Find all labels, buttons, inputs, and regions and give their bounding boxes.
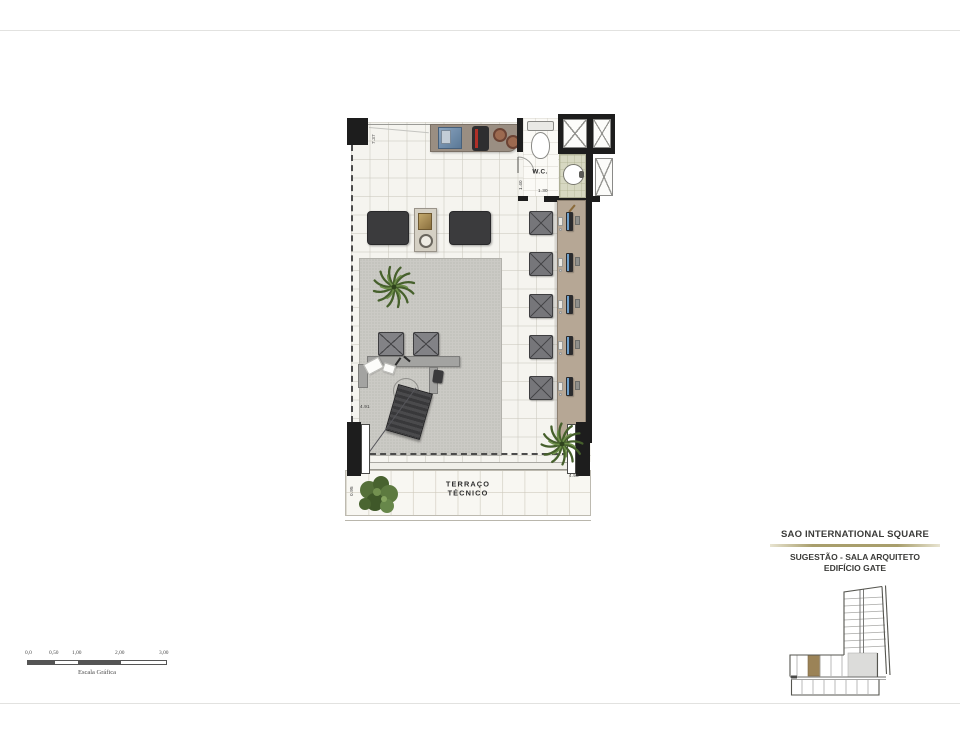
scale-tick-3: 2,00: [115, 649, 125, 655]
task-chair-2: [529, 252, 553, 276]
page-top-rule: [0, 30, 960, 31]
task-chair-1: [529, 211, 553, 235]
page: { "plan": { "labels": { "wc": "W.C.", "t…: [0, 0, 960, 735]
page-bottom-rule: [0, 703, 960, 704]
scale-segment-light-2: [121, 661, 166, 664]
basin-tap: [579, 171, 584, 178]
shaft-duct-2: [593, 119, 611, 148]
floor-plan: W.C. 1.40 1.30: [345, 112, 617, 532]
dim-top-width: 7.37: [371, 134, 376, 144]
palm-plant-2: [533, 415, 591, 473]
scale-tick-0: 0,0: [25, 649, 32, 655]
decor-bowl: [419, 234, 433, 248]
wall-wc-door-jamb: [518, 196, 528, 201]
scale-tick-1: 0,50: [49, 649, 59, 655]
workstation-desk: [557, 200, 586, 443]
wall-basin-east: [586, 154, 593, 202]
scale-bar: 0,0 0,50 1,00 2,00 3,00 Escala Gráfica: [25, 649, 175, 685]
table-lamp: [418, 213, 432, 230]
architect-chair-1: [378, 332, 404, 356]
coffee-machine-accent: [475, 129, 478, 148]
armchair-1: [367, 211, 409, 245]
building-key-diagram: [789, 583, 921, 697]
wc-label: W.C.: [528, 168, 552, 175]
task-chair-3: [529, 294, 553, 318]
palm-plant-1: [365, 258, 423, 316]
scale-caption: Escala Gráfica: [45, 668, 149, 675]
dim-room-depth: 4.91: [360, 404, 370, 409]
dim-wc-depth: 1.40: [518, 180, 523, 190]
scale-bar-rule: [27, 660, 167, 665]
toilet-bowl: [531, 132, 550, 159]
title-separator: [770, 544, 940, 547]
plan-subtitle-1: SUGESTÃO - SALA ARQUITETO: [770, 552, 940, 562]
west-glass-wall: [351, 145, 353, 422]
architect-chair-2: [413, 332, 439, 356]
toilet-tank: [527, 121, 554, 131]
dim-wc-width: 1.30: [538, 188, 548, 193]
task-chair-4: [529, 335, 553, 359]
scale-tick-2: 1,00: [72, 649, 82, 655]
top-wall-line: [367, 124, 431, 125]
dim-terrace-depth: 0.95: [349, 486, 354, 496]
pillar-top-left: [347, 118, 368, 145]
armchair-2: [449, 211, 491, 245]
telephone: [432, 369, 444, 383]
shaft-duct-1: [563, 119, 587, 148]
shaft-duct-3: [595, 158, 613, 196]
pillar-bottom-left: [347, 422, 361, 476]
terrace-label: TERRAÇO TÉCNICO: [433, 480, 503, 498]
sink-basin: [441, 130, 451, 144]
window-frame-left: [361, 424, 370, 474]
scale-segment-dark-1: [28, 661, 55, 664]
project-title: SAO INTERNATIONAL SQUARE: [770, 529, 940, 540]
scale-segment-dark-2: [78, 661, 121, 664]
task-chair-5: [529, 376, 553, 400]
cooktop-burner-1: [493, 128, 507, 142]
scale-tick-4: 3,00: [159, 649, 169, 655]
east-wall: [586, 200, 592, 443]
terrace-shrub: [357, 472, 401, 518]
plan-subtitle-2: EDIFÍCIO GATE: [770, 563, 940, 573]
dim-terrace-width: 4.98: [569, 473, 579, 478]
title-block: SAO INTERNATIONAL SQUARE SUGESTÃO - SALA…: [770, 529, 940, 697]
scale-segment-light-1: [55, 661, 78, 664]
terrace-edge-line: [345, 520, 591, 521]
